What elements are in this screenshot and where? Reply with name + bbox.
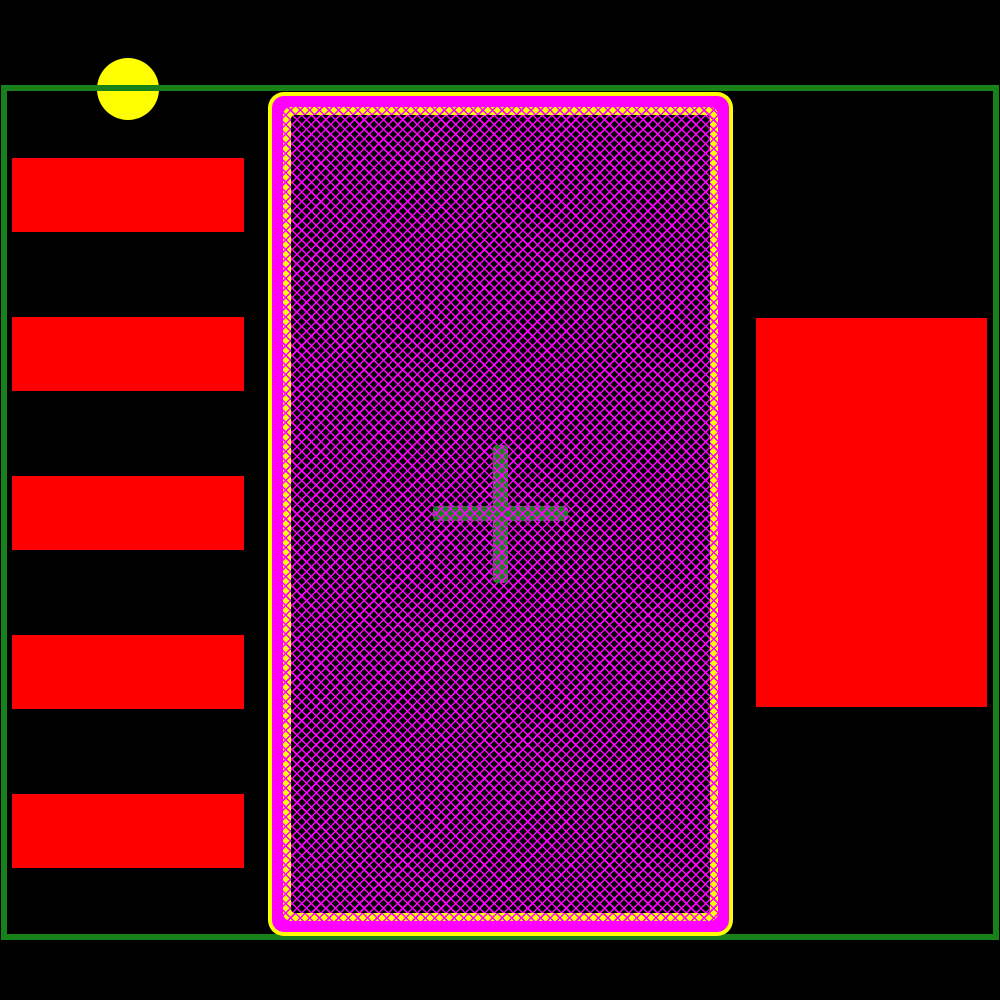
left-pad[interactable]	[12, 317, 244, 391]
left-pad[interactable]	[12, 794, 244, 868]
left-pad[interactable]	[12, 476, 244, 550]
origin-crosshair-v-icon	[493, 445, 508, 583]
pcb-canvas[interactable]	[0, 0, 1000, 1000]
left-pad[interactable]	[12, 158, 244, 232]
left-pad[interactable]	[12, 635, 244, 709]
right-pad[interactable]	[756, 318, 987, 707]
